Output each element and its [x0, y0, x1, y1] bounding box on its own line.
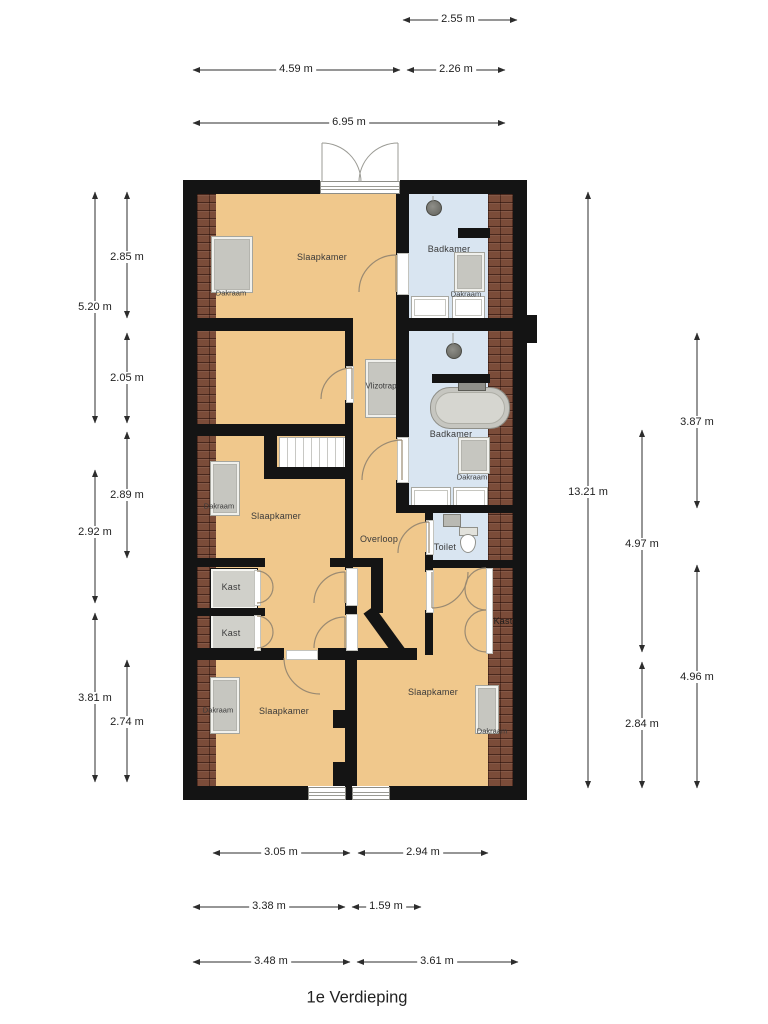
wall [345, 786, 352, 800]
room-label-dakraam: Dakraam [457, 473, 487, 482]
skylight-window [212, 237, 252, 292]
wall [183, 318, 353, 331]
room-label-badkamer-mid: Badkamer [430, 429, 473, 439]
door-threshold [346, 614, 358, 651]
dim-top-255: 2.55 m [438, 13, 478, 25]
wall [345, 331, 353, 368]
dim-right-497: 4.97 m [622, 538, 662, 550]
wall [183, 180, 197, 800]
room-label-badkamer-top: Badkamer [428, 244, 471, 254]
dim-left-285: 2.85 m [107, 251, 147, 263]
wall [396, 331, 409, 439]
room-label-dakraam: Dakraam [216, 289, 246, 298]
door-threshold [346, 366, 354, 403]
dim-right-1321: 13.21 m [565, 486, 611, 498]
wall [345, 430, 353, 570]
wall [425, 560, 527, 568]
dim-left-520: 5.20 m [75, 301, 115, 313]
balcony-door-sill [320, 181, 400, 194]
sink [411, 296, 449, 319]
room-label-toilet: Toilet [434, 542, 456, 552]
door-threshold [346, 568, 358, 606]
dim-top-226: 2.26 m [436, 63, 476, 75]
room-label-kast-right: Kast [494, 616, 513, 626]
wall [409, 505, 513, 513]
dim-right-284: 2.84 m [622, 718, 662, 730]
room-label-slaapkamer-br: Slaapkamer [408, 687, 458, 697]
bathtub [430, 387, 510, 429]
room-label-dakraam: Dakraam [203, 706, 233, 715]
wall [183, 424, 353, 436]
toilet-basin [443, 514, 461, 527]
room-label-dakraam: Dakraam [477, 727, 507, 736]
skylight-window [455, 253, 484, 291]
wall [333, 710, 346, 728]
room-label-kast-1: Kast [222, 582, 241, 592]
room-label-overloop: Overloop [360, 534, 398, 544]
wall [264, 467, 353, 479]
closet-door-frame [254, 615, 261, 651]
door-threshold [397, 437, 409, 483]
sink [452, 296, 485, 319]
room-label-dakraam: Dakraam [451, 290, 481, 299]
dim-top-695: 6.95 m [329, 116, 369, 128]
wall [396, 318, 527, 331]
dim-bottom-361: 3.61 m [417, 955, 457, 967]
window [308, 787, 346, 800]
dim-left-292: 2.92 m [75, 526, 115, 538]
door-threshold [397, 253, 409, 295]
room-label-vlizotrap: Vlizotrap [365, 382, 396, 391]
dim-bottom-348: 3.48 m [251, 955, 291, 967]
page-title: 1e Verdieping [307, 989, 408, 1008]
dim-bottom-294: 2.94 m [403, 846, 443, 858]
wall [396, 194, 409, 255]
wall [425, 610, 433, 655]
dim-bottom-338: 3.38 m [249, 900, 289, 912]
wall [371, 558, 383, 613]
dim-right-496: 4.96 m [677, 671, 717, 683]
wall [396, 292, 409, 331]
door-threshold [426, 570, 434, 613]
wall [183, 786, 308, 800]
skylight-window [459, 438, 489, 473]
shower-head [426, 200, 442, 216]
door-threshold [426, 520, 434, 555]
room-label-slaapkamer-bl: Slaapkamer [259, 706, 309, 716]
room-label-slaapkamer-tl: Slaapkamer [297, 252, 347, 262]
dim-left-205: 2.05 m [107, 372, 147, 384]
closet-door-frame [486, 568, 493, 654]
dim-right-387: 3.87 m [677, 416, 717, 428]
wall [183, 558, 265, 567]
wall [389, 786, 527, 800]
wall [458, 228, 490, 238]
wall [183, 180, 320, 194]
dim-left-274: 2.74 m [107, 716, 147, 728]
dim-bottom-159: 1.59 m [366, 900, 406, 912]
wall [333, 762, 346, 786]
wall [513, 180, 527, 800]
dim-bottom-305: 3.05 m [261, 846, 301, 858]
room-label-kast-2: Kast [222, 628, 241, 638]
dim-top-459: 4.59 m [276, 63, 316, 75]
room-label-slaapkamer-mid: Slaapkamer [251, 511, 301, 521]
wall [183, 648, 284, 660]
dim-left-381: 3.81 m [75, 692, 115, 704]
door-threshold [286, 650, 318, 660]
wall [396, 480, 409, 513]
dim-left-289: 2.89 m [107, 489, 147, 501]
closet-door-frame [254, 570, 261, 606]
shower-head [446, 343, 462, 359]
room-label-dakraam: Dakraam [204, 502, 234, 511]
wall [345, 655, 357, 786]
wall [318, 648, 348, 660]
staircase [279, 437, 347, 469]
wall [357, 648, 417, 660]
window [352, 787, 390, 800]
floor-plan: Slaapkamer Badkamer Dakraam Dakraam Vliz… [0, 0, 768, 1024]
wall [400, 180, 527, 194]
wall [432, 374, 490, 383]
